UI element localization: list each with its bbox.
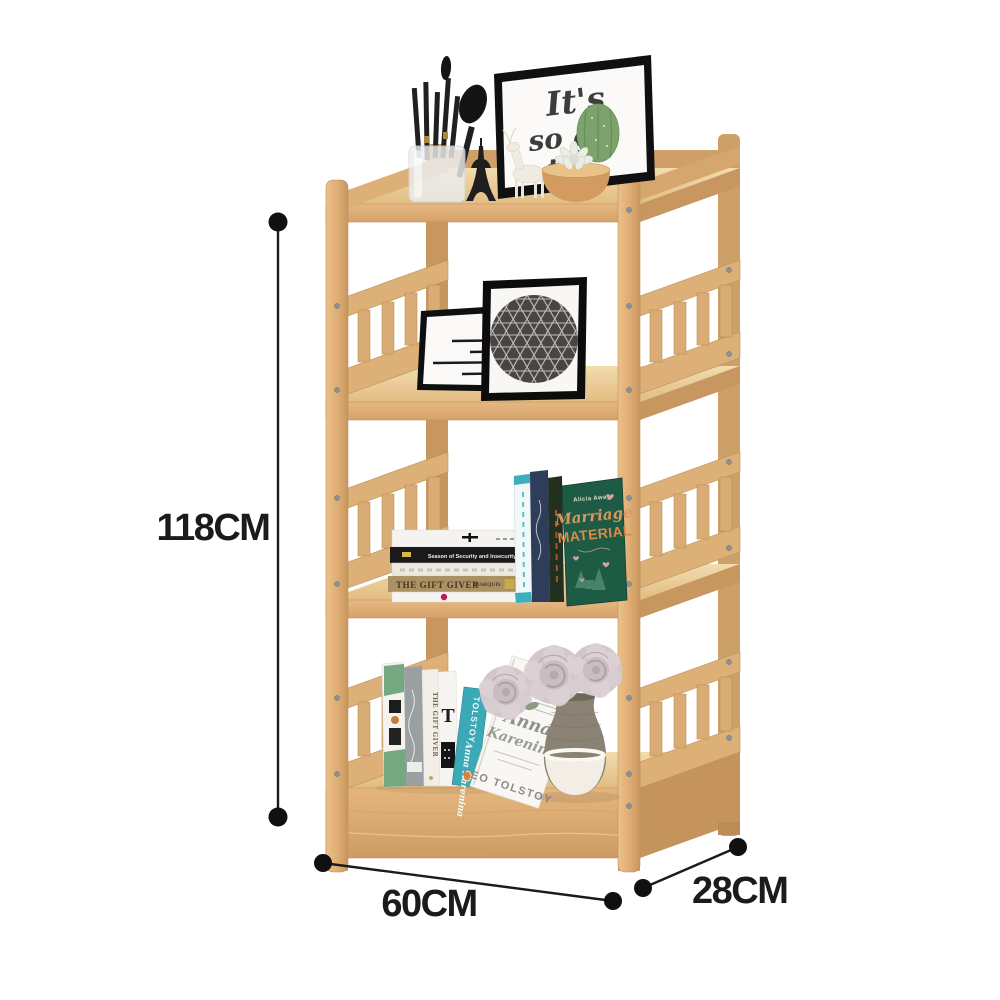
product-illustration: It's so go t — [0, 0, 1000, 1000]
t-spine-mark: T — [441, 705, 455, 727]
top-shelf-decor: It's so go t — [409, 55, 655, 202]
bottom-shelf-decor: THE GIFT GIVER T TOLSTOY Anna Karenina — [375, 643, 622, 819]
book-stack: Season of Security and Insecurity THE GI… — [388, 530, 532, 602]
gift-giver-spine-text: THE GIFT GIVER — [396, 580, 479, 590]
product-image-canvas: It's so go t — [0, 0, 1000, 1000]
third-shelf-books: Season of Security and Insecurity THE GI… — [388, 470, 633, 606]
height-dimension-label: 118CM — [157, 507, 270, 549]
security-spine-text: Season of Security and Insecurity — [428, 554, 517, 560]
marquis-spine-text: MARQUIS — [474, 582, 501, 588]
depth-dimension-label: 28CM — [692, 870, 787, 912]
width-dimension-label: 60CM — [381, 883, 476, 925]
height-dimension: 118CM — [157, 213, 288, 827]
upright-books: Alicia Away Marriage MATERIAL — [514, 470, 633, 606]
bottom-books: THE GIFT GIVER T — [382, 662, 458, 787]
width-dimension: 60CM — [314, 854, 622, 925]
geometric-art-frame — [475, 277, 592, 401]
bottom-gift-giver-spine: THE GIFT GIVER — [431, 692, 439, 758]
